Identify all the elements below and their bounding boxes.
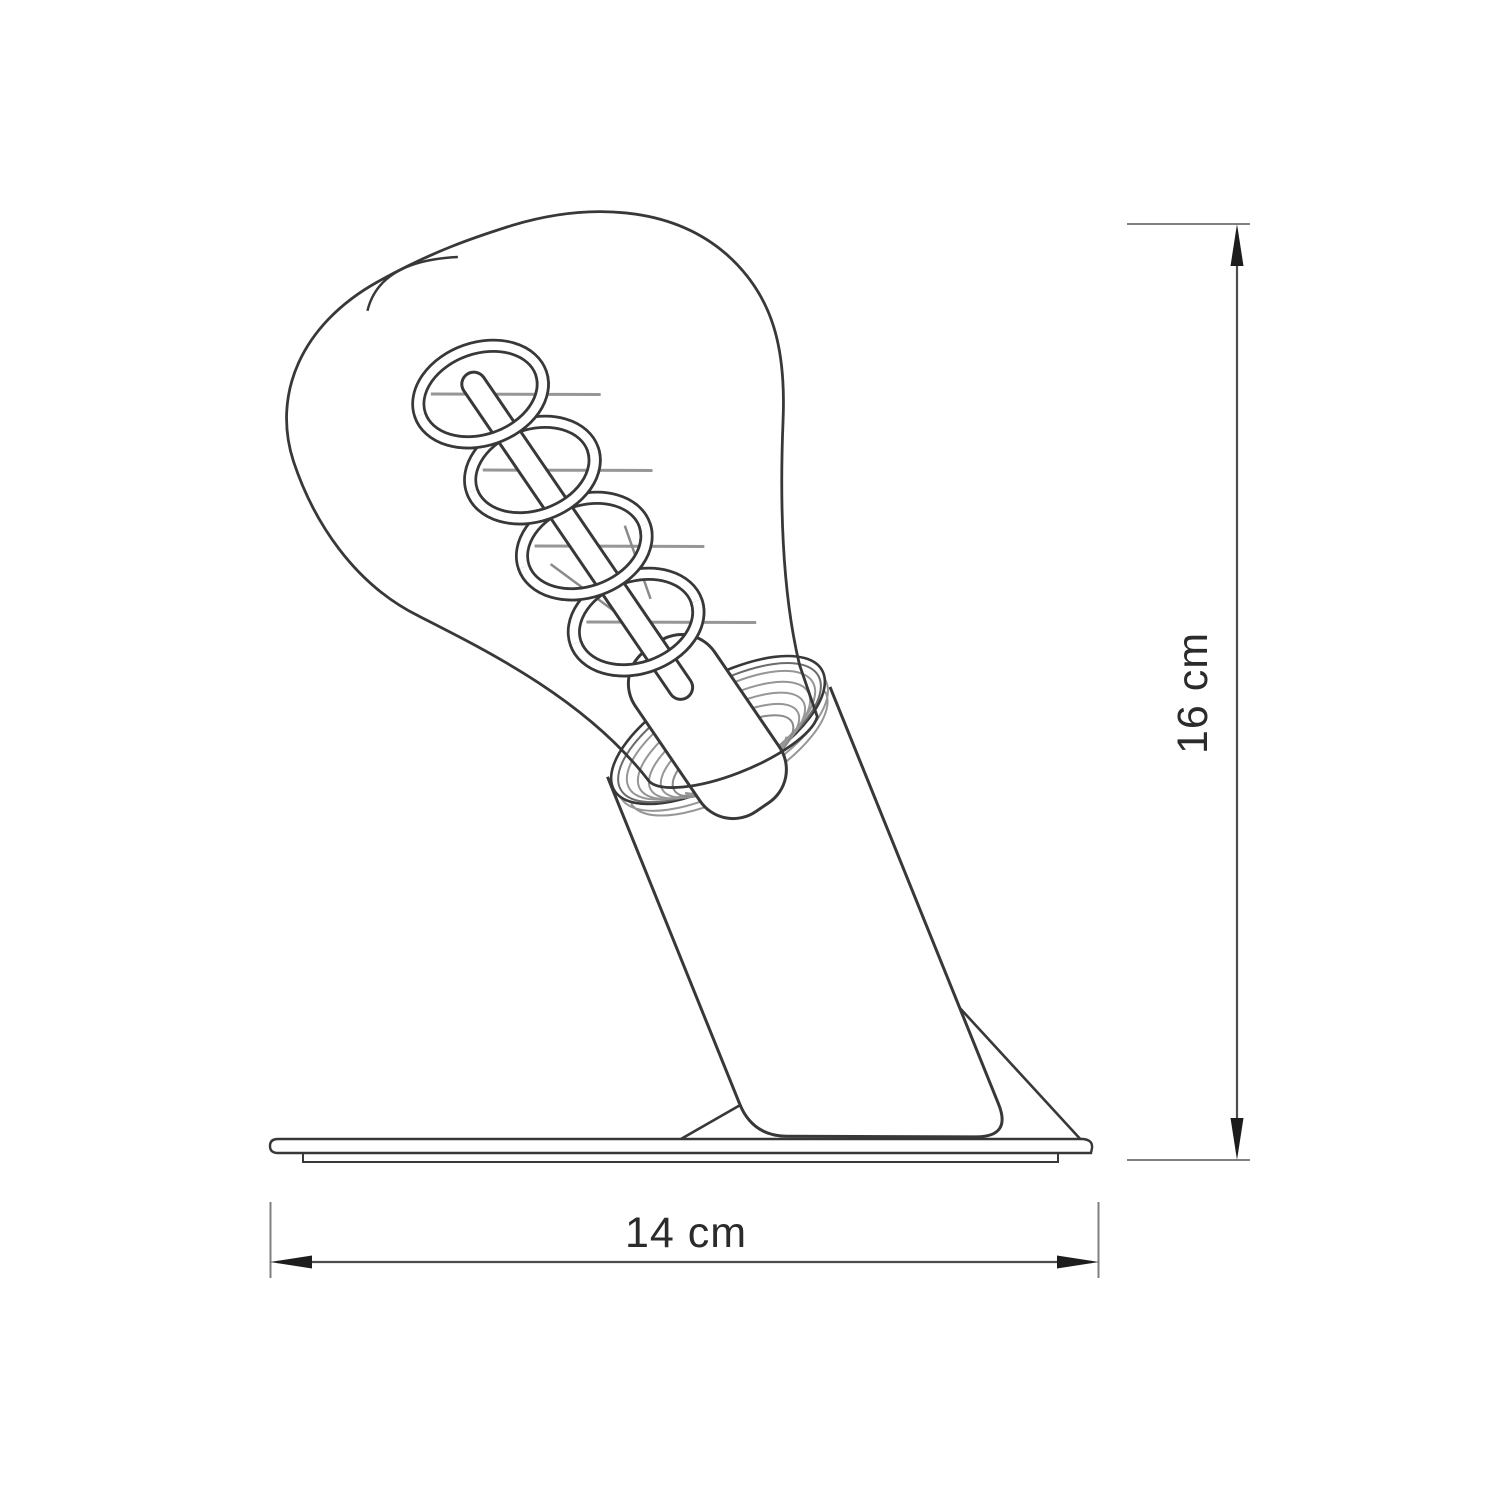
diagram-canvas: 16 cm 14 cm — [0, 0, 1500, 1500]
height-dimension-label: 16 cm — [1169, 632, 1217, 754]
base-plate-top — [270, 1139, 1092, 1153]
width-dimension-label: 14 cm — [625, 1209, 747, 1257]
technical-drawing: 16 cm 14 cm — [0, 0, 1500, 1500]
base-plate — [270, 1139, 1092, 1162]
